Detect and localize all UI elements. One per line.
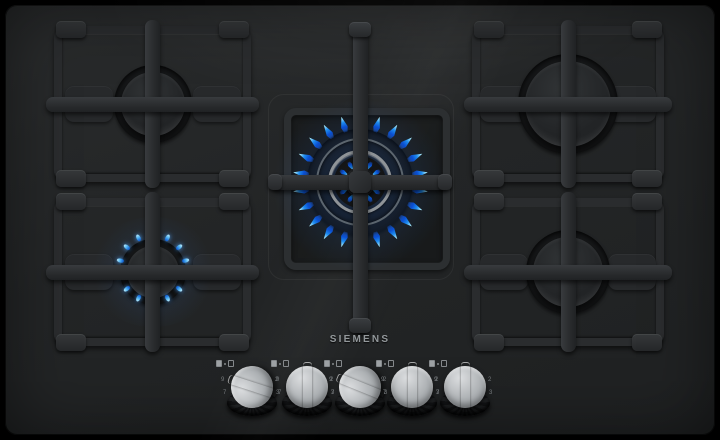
- burner-position-icon: [216, 360, 234, 367]
- knob-scale-number: 9: [434, 377, 437, 383]
- support-foot: [56, 170, 86, 187]
- pan-support-bar: [46, 97, 259, 112]
- knob-scale-number: 7: [331, 390, 334, 396]
- pan-support-bar: [46, 265, 259, 280]
- knob-handle: [408, 362, 417, 412]
- support-foot: [219, 193, 249, 210]
- control-knob-back-left[interactable]: 9723: [279, 358, 335, 428]
- knob-scale-number: 9: [329, 377, 332, 383]
- knob-scale-number: 3: [489, 390, 492, 396]
- knob-scale-number: 9: [221, 377, 224, 383]
- brand-logo: SIEMENS: [260, 334, 460, 345]
- knob-scale-number: 2: [488, 377, 491, 383]
- bar-end-foot: [349, 318, 371, 333]
- pan-support-bar: [464, 265, 672, 280]
- knob-scale-number: 9: [381, 377, 384, 383]
- support-foot: [219, 170, 249, 187]
- pan-support-front-right: [468, 196, 668, 348]
- support-foot: [474, 170, 504, 187]
- product-image: SIEMENS 9723 9723: [0, 0, 720, 440]
- knob-scale-number: 7: [223, 390, 226, 396]
- support-bar-boss: [349, 171, 371, 193]
- support-foot: [56, 21, 86, 38]
- control-knob-front-left[interactable]: 9723: [224, 358, 280, 428]
- support-foot: [56, 193, 86, 210]
- bar-end-foot: [349, 22, 371, 37]
- support-foot: [632, 334, 662, 351]
- control-knob-center-wok[interactable]: 9723: [332, 358, 388, 428]
- bar-end-foot: [438, 174, 452, 190]
- support-foot: [474, 193, 504, 210]
- control-knob-front-right[interactable]: 9723: [437, 358, 493, 428]
- support-foot: [474, 334, 504, 351]
- support-foot: [219, 334, 249, 351]
- bar-end-foot: [268, 174, 282, 190]
- pan-support-front-left: [50, 196, 255, 348]
- support-foot: [56, 334, 86, 351]
- control-knob-back-right[interactable]: 9723: [384, 358, 440, 428]
- support-foot: [474, 21, 504, 38]
- pan-support-bar: [464, 97, 672, 112]
- knob-handle: [303, 362, 312, 412]
- knob-scale-number: 7: [383, 390, 386, 396]
- pan-support-back-left: [50, 24, 255, 184]
- pan-support-back-right: [468, 24, 668, 184]
- support-foot: [219, 21, 249, 38]
- knob-scale-number: 9: [276, 377, 279, 383]
- knob-scale-number: 7: [278, 390, 281, 396]
- support-foot: [632, 21, 662, 38]
- support-foot: [632, 170, 662, 187]
- burner-position-icon: [324, 360, 342, 367]
- support-foot: [632, 193, 662, 210]
- knob-scale-number: 7: [436, 390, 439, 396]
- knob-handle: [461, 362, 470, 412]
